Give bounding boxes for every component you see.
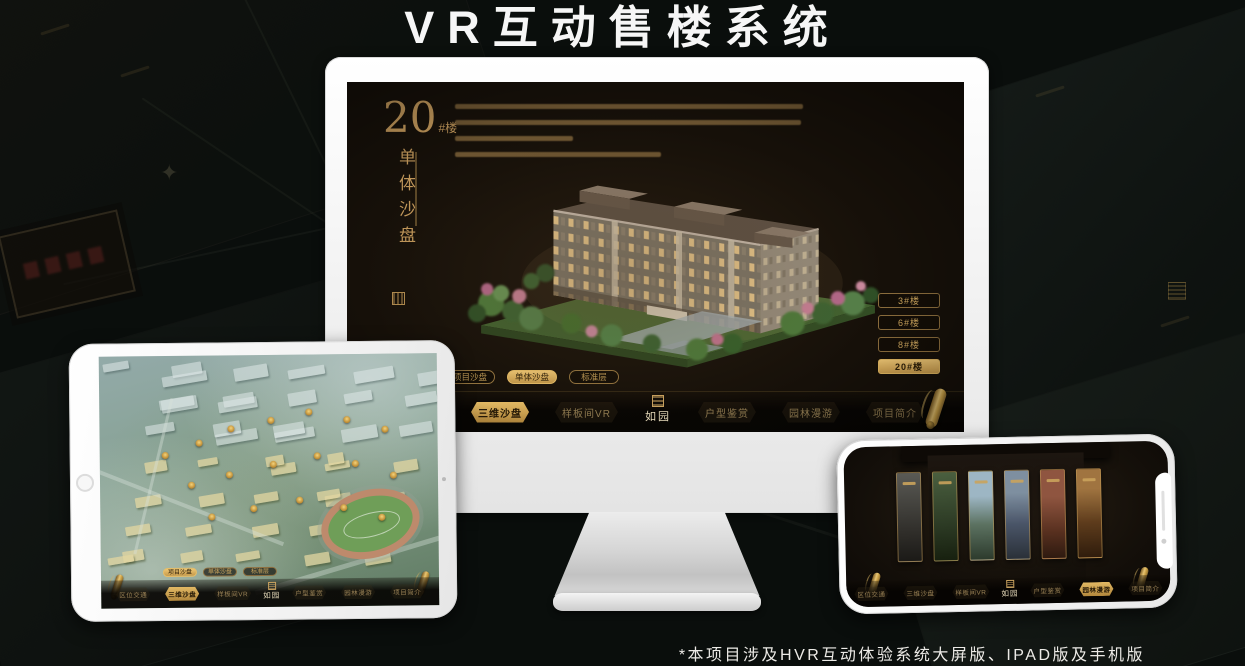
phone-nav-3d-sandbox[interactable]: 三维沙盘 <box>900 585 940 600</box>
scene-panel-label <box>1082 478 1095 481</box>
phone-nav-project-intro[interactable]: 项目简介 <box>1125 581 1165 596</box>
phone-nav-showroom-vr[interactable]: 样板间VR <box>949 584 992 599</box>
building-number-marker[interactable] <box>314 452 321 459</box>
background-qr-mark <box>1168 282 1186 300</box>
building-number-marker[interactable] <box>227 425 234 432</box>
phone-brand-logo: 如园 <box>1001 579 1018 598</box>
phone-nav-unit-gallery[interactable]: 户型鉴赏 <box>1027 583 1067 598</box>
tablet-tab-project-sandbox[interactable]: 项目沙盘 <box>163 568 197 577</box>
phone-device: 区位交通 三维沙盘 样板间VR 如园 户型鉴赏 园林漫游 项目简介 <box>836 433 1178 614</box>
building-number-marker[interactable] <box>226 471 233 478</box>
tablet-brand-seal-icon <box>268 581 276 589</box>
building-number-marker[interactable] <box>378 514 385 521</box>
tablet-home-button[interactable] <box>76 474 94 492</box>
scene-panel-6[interactable] <box>1076 468 1103 559</box>
building-number-marker[interactable] <box>270 461 277 468</box>
scene-panel-2[interactable] <box>932 471 959 562</box>
scene-panel-4[interactable] <box>1004 470 1031 561</box>
phone-notch <box>1155 473 1173 569</box>
building-number-marker[interactable] <box>188 482 195 489</box>
phone-screen: 区位交通 三维沙盘 样板间VR 如园 户型鉴赏 园林漫游 项目简介 <box>843 441 1170 608</box>
building-number-marker[interactable] <box>352 460 359 467</box>
building-number-marker[interactable] <box>343 416 350 423</box>
phone-navbar: 区位交通 三维沙盘 样板间VR 如园 户型鉴赏 园林漫游 项目简介 <box>846 575 1170 608</box>
phone-brand-logo-text: 如园 <box>1001 587 1018 598</box>
tablet-frame: 项目沙盘 单体沙盘 标准层 区位交通 三维沙盘 样板间VR 如园 户型鉴赏 园林… <box>69 340 458 622</box>
phone-frame: 区位交通 三维沙盘 样板间VR 如园 户型鉴赏 园林漫游 项目简介 <box>836 433 1178 614</box>
scene-panel-label <box>902 482 915 485</box>
building-number-marker[interactable] <box>381 426 388 433</box>
building-number-marker[interactable] <box>390 472 397 479</box>
building-number-marker[interactable] <box>196 440 203 447</box>
footnote-text: *本项目涉及HVR互动体验系统大屏版、IPAD版及手机版 <box>679 641 1145 665</box>
tablet-nav-garden-roam[interactable]: 园林漫游 <box>338 585 378 599</box>
monitor-stand-neck <box>555 512 760 596</box>
tablet-nav-showroom-vr[interactable]: 样板间VR <box>211 586 254 600</box>
tablet-nav-location-traffic[interactable]: 区位交通 <box>113 587 153 601</box>
scene-panel-1[interactable] <box>896 472 923 563</box>
tablet-camera-icon <box>442 477 446 481</box>
tablet-screen: 项目沙盘 单体沙盘 标准层 区位交通 三维沙盘 样板间VR 如园 户型鉴赏 园林… <box>99 353 440 609</box>
tablet-view-tab-group: 项目沙盘 单体沙盘 标准层 <box>163 567 277 577</box>
building-number-marker[interactable] <box>305 408 312 415</box>
scene-panel-label <box>1010 480 1023 483</box>
tablet-nav-3d-sandbox[interactable]: 三维沙盘 <box>162 587 202 601</box>
phone-nav-garden-roam[interactable]: 园林漫游 <box>1076 582 1116 597</box>
building-number-marker[interactable] <box>250 505 257 512</box>
building-number-marker[interactable] <box>267 417 274 424</box>
scene-panel-5[interactable] <box>1040 469 1067 560</box>
building-number-marker[interactable] <box>208 514 215 521</box>
phone-speaker-slit <box>1161 491 1165 531</box>
page-title: VR互动售楼系统 <box>0 0 1245 56</box>
scene-panel-label <box>1046 479 1059 482</box>
tablet-nav-unit-gallery[interactable]: 户型鉴赏 <box>289 585 329 599</box>
tablet-device: 项目沙盘 单体沙盘 标准层 区位交通 三维沙盘 样板间VR 如园 户型鉴赏 园林… <box>69 340 458 622</box>
monitor-stand-base <box>553 593 761 611</box>
scene-panel-label <box>938 481 951 484</box>
tablet-brand-logo: 如园 <box>263 581 280 600</box>
tablet-tab-standard-floor[interactable]: 标准层 <box>243 567 277 576</box>
phone-nav-location-traffic[interactable]: 区位交通 <box>851 586 891 601</box>
tablet-brand-logo-text: 如园 <box>263 589 280 600</box>
building-number-marker[interactable] <box>296 497 303 504</box>
building-number-marker[interactable] <box>340 504 347 511</box>
scene-panel-3[interactable] <box>968 470 995 561</box>
phone-camera-icon <box>1161 539 1166 544</box>
tablet-tab-single-sandbox[interactable]: 单体沙盘 <box>203 567 237 576</box>
compass-star-icon: ✦ <box>160 160 178 186</box>
building-number-marker[interactable] <box>162 452 169 459</box>
scene-panel-label <box>974 480 987 483</box>
phone-brand-seal-icon <box>1006 579 1014 587</box>
tablet-navbar: 区位交通 三维沙盘 样板间VR 如园 户型鉴赏 园林漫游 项目简介 <box>101 577 439 609</box>
tablet-nav-project-intro[interactable]: 项目简介 <box>387 584 427 598</box>
